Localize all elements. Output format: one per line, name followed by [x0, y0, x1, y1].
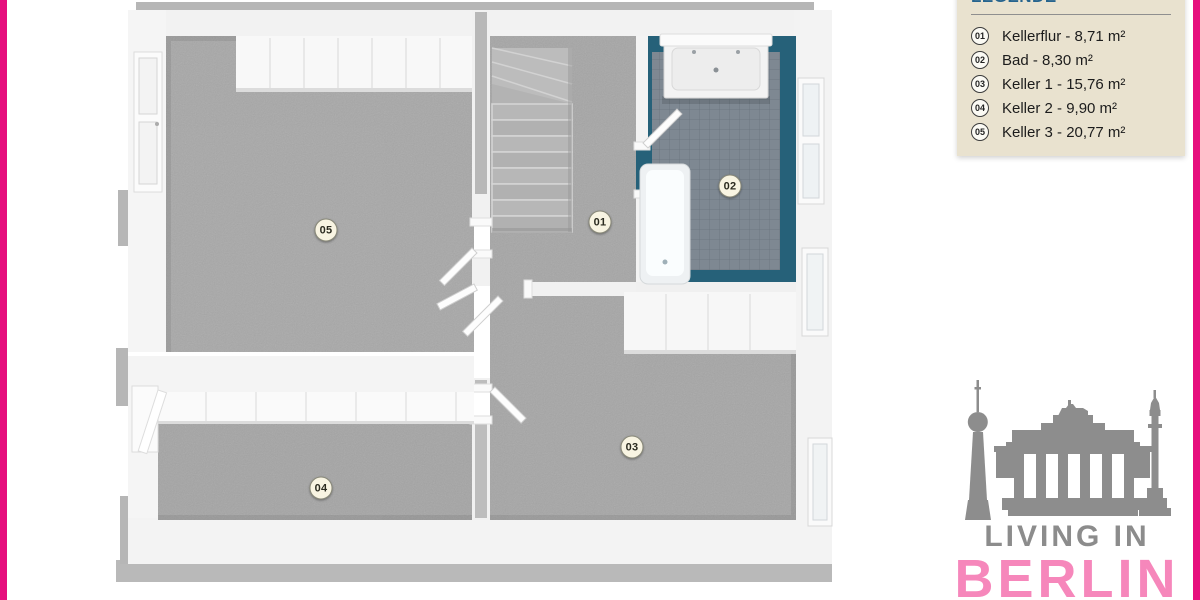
legend-item-label: Keller 1 - 15,76 m² [1002, 76, 1125, 93]
staircase [492, 48, 572, 233]
logo-text-living-in: LIVING IN [942, 522, 1192, 552]
left-accent-bar [0, 0, 7, 600]
berlin-skyline-icon [956, 380, 1178, 520]
legend-item-label: Keller 3 - 20,77 m² [1002, 124, 1125, 141]
room-label-05: 05 [315, 219, 338, 242]
wall-05-04 [128, 352, 474, 392]
legend-item-keller-1: 03 Keller 1 - 15,76 m² [971, 72, 1171, 96]
legend-item-kellerflur: 01 Kellerflur - 8,71 m² [971, 24, 1171, 48]
vanity-sink [660, 34, 772, 104]
legend-item-bad: 02 Bad - 8,30 m² [971, 48, 1171, 72]
room-label-03: 03 [621, 436, 644, 459]
room-label-01: 01 [589, 211, 612, 234]
legend-panel: LEGENDE 01 Kellerflur - 8,71 m² 02 Bad -… [957, 0, 1185, 156]
legend-item-number: 02 [971, 51, 989, 69]
legend-divider [971, 14, 1171, 15]
window-bathroom-right [798, 78, 824, 204]
wall-hall-03 [524, 280, 640, 298]
floorplan-drawing [110, 0, 850, 600]
room-04-closet [156, 392, 474, 424]
legend-item-label: Keller 2 - 9,90 m² [1002, 100, 1117, 117]
floorplan-3d-render: 01 02 03 04 05 [110, 0, 850, 600]
legend-item-number: 05 [971, 123, 989, 141]
living-in-berlin-logo: LIVING IN BERLIN [942, 380, 1192, 600]
legend-item-label: Kellerflur - 8,71 m² [1002, 28, 1125, 45]
room-label-04: 04 [310, 477, 333, 500]
page: 01 02 03 04 05 LEGENDE 01 Kellerflur - 8… [0, 0, 1200, 600]
legend-item-number: 01 [971, 27, 989, 45]
window-left-tall [134, 52, 162, 192]
window-right-mid [802, 248, 828, 336]
legend-title: LEGENDE [971, 0, 1171, 10]
room-03-closet [624, 292, 796, 354]
logo-text-berlin: BERLIN [942, 554, 1192, 600]
legend-item-keller-2: 04 Keller 2 - 9,90 m² [971, 96, 1171, 120]
legend-item-label: Bad - 8,30 m² [1002, 52, 1093, 69]
legend-item-number: 03 [971, 75, 989, 93]
legend-item-number: 04 [971, 99, 989, 117]
legend-item-keller-3: 05 Keller 3 - 20,77 m² [971, 120, 1171, 144]
window-room-03-right [808, 438, 832, 526]
tv-tower-silhouette [965, 380, 991, 520]
room-label-02: 02 [719, 175, 742, 198]
brandenburg-gate-silhouette [994, 400, 1152, 516]
right-accent-bar [1193, 0, 1200, 600]
bathtub [640, 164, 690, 284]
room-05-closet [236, 36, 474, 92]
